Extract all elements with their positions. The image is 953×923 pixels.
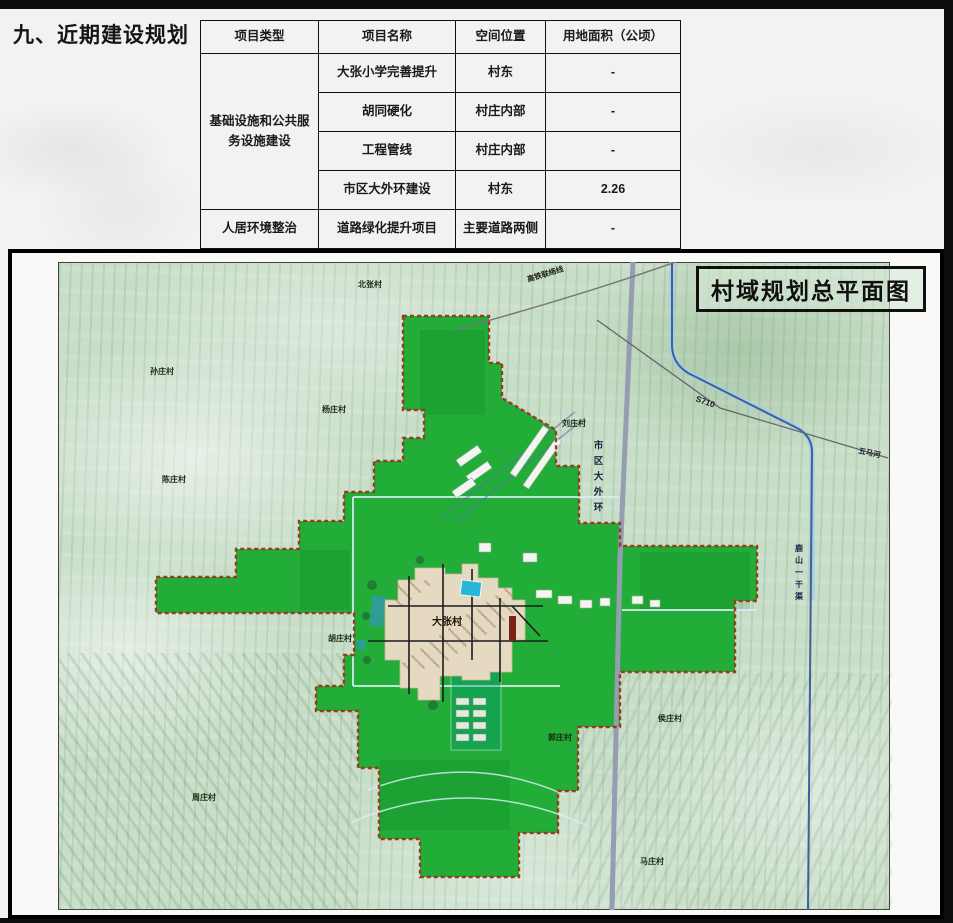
project-name-cell: 工程管线 — [319, 132, 456, 171]
table-header-row: 项目类型 项目名称 空间位置 用地面积（公顷） — [201, 21, 681, 54]
teal-strip-west — [370, 596, 386, 627]
railway-curve — [455, 262, 695, 330]
section-title: 九、近期建设规划 — [13, 19, 189, 49]
location-cell: 村东 — [456, 171, 546, 210]
railway-label: 高铁联络线 — [526, 263, 565, 284]
project-name-cell: 道路绿化提升项目 — [319, 210, 456, 249]
area-cell: - — [546, 132, 681, 171]
svg-text:周庄村: 周庄村 — [192, 792, 216, 802]
svg-text:胡庄村: 胡庄村 — [328, 633, 352, 643]
plan-map: 大张村 市区大外环 鹿山一干渠 S710 五马河 高铁联络线 北张村 孙庄村 陈… — [58, 262, 890, 910]
area-cell: 2.26 — [546, 171, 681, 210]
location-cell: 村庄内部 — [456, 93, 546, 132]
svg-text:杨庄村: 杨庄村 — [322, 404, 346, 414]
project-name-cell: 大张小学完善提升 — [319, 54, 456, 93]
svg-text:侯庄村: 侯庄村 — [658, 713, 682, 723]
canal-label: 鹿山一干渠 — [794, 543, 804, 604]
river-label: 五马河 — [858, 445, 883, 460]
pond — [460, 580, 482, 597]
teal-patch-small — [357, 640, 365, 650]
scanned-plan-page: 九、近期建设规划 项目类型 项目名称 空间位置 用地面积（公顷） 基础设施和公共… — [0, 0, 953, 923]
col-header-area: 用地面积（公顷） — [546, 21, 681, 54]
area-cell: - — [546, 93, 681, 132]
table-row: 人居环境整治 道路绿化提升项目 主要道路两侧 - — [201, 210, 681, 249]
area-cell: - — [546, 54, 681, 93]
svg-text:孙庄村: 孙庄村 — [150, 366, 174, 376]
village-center-label: 大张村 — [432, 615, 462, 628]
svg-text:郭庄村: 郭庄村 — [548, 732, 572, 742]
red-landmark — [509, 616, 516, 641]
provincial-road-label: S710 — [694, 393, 716, 409]
map-title: 村域规划总平面图 — [696, 266, 926, 312]
svg-text:北张村: 北张村 — [358, 279, 382, 289]
project-name-cell: 胡同硬化 — [319, 93, 456, 132]
provincial-road — [597, 320, 888, 458]
page-border-top — [0, 0, 953, 9]
col-header-project-type: 项目类型 — [201, 21, 319, 54]
location-cell: 主要道路两侧 — [456, 210, 546, 249]
page-border-right — [944, 0, 953, 923]
project-name-cell: 市区大外环建设 — [319, 171, 456, 210]
area-cell: - — [546, 210, 681, 249]
near-term-construction-table: 项目类型 项目名称 空间位置 用地面积（公顷） 基础设施和公共服务设施建设 大张… — [200, 20, 681, 249]
location-cell: 村庄内部 — [456, 132, 546, 171]
col-header-project-name: 项目名称 — [319, 21, 456, 54]
ring-road-label: 市区大外环 — [592, 439, 605, 517]
category-infrastructure: 基础设施和公共服务设施建设 — [201, 54, 319, 210]
category-living-environment: 人居环境整治 — [201, 210, 319, 249]
table-row: 基础设施和公共服务设施建设 大张小学完善提升 村东 - — [201, 54, 681, 93]
svg-text:陈庄村: 陈庄村 — [162, 474, 186, 484]
svg-text:刘庄村: 刘庄村 — [562, 418, 586, 428]
svg-text:马庄村: 马庄村 — [640, 856, 664, 866]
location-cell: 村东 — [456, 54, 546, 93]
col-header-location: 空间位置 — [456, 21, 546, 54]
village-plan-map-panel: 大张村 市区大外环 鹿山一干渠 S710 五马河 高铁联络线 北张村 孙庄村 陈… — [8, 249, 944, 919]
